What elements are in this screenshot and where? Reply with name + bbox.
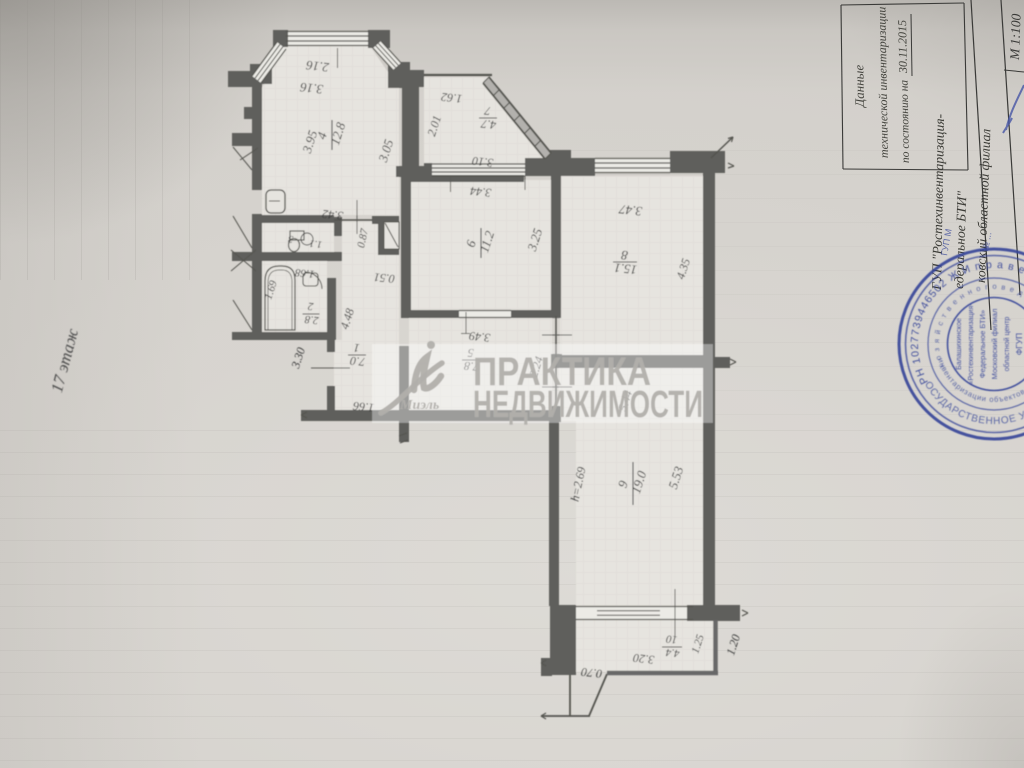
svg-text:3: 3 [288, 233, 295, 245]
svg-text:1.66: 1.66 [352, 399, 374, 415]
svg-text:3.30: 3.30 [288, 346, 308, 371]
svg-text:2.16: 2.16 [305, 58, 330, 75]
svg-text:«Ростехинвентаризация-: «Ростехинвентаризация- [968, 303, 975, 385]
svg-text:17 этаж: 17 этаж [47, 326, 82, 394]
svg-text:3.16: 3.16 [299, 80, 325, 97]
svg-text:10: 10 [665, 632, 678, 645]
svg-text:3.10: 3.10 [471, 154, 494, 170]
svg-text:Данные: Данные [851, 64, 867, 109]
svg-text:0.51: 0.51 [373, 270, 395, 286]
svg-text:7.0: 7.0 [349, 354, 365, 369]
svg-text:4.7: 4.7 [479, 117, 496, 133]
svg-text:2.8: 2.8 [304, 313, 319, 326]
svg-text:по состоянию на: по состоянию на [899, 80, 912, 164]
svg-text:Миэль: Миэль [399, 398, 439, 413]
svg-text:3.20: 3.20 [632, 651, 655, 667]
svg-text:1.20: 1.20 [723, 633, 743, 657]
svg-text:Федеральное БТИ»: Федеральное БТИ» [978, 310, 987, 378]
svg-text:технической инвентаризации: технической инвентаризации [874, 7, 891, 159]
svg-text:3.47: 3.47 [618, 202, 644, 219]
svg-text:3.44: 3.44 [469, 184, 492, 200]
svg-text:областной центр: областной центр [1003, 317, 1011, 372]
svg-text:1.68: 1.68 [294, 266, 315, 280]
svg-text:Московский филиал: Московский филиал [990, 309, 999, 380]
svg-text:НЕДВИЖИМОСТИ: НЕДВИЖИМОСТИ [473, 384, 703, 426]
svg-text:0.70: 0.70 [580, 665, 602, 681]
svg-text:4.4: 4.4 [665, 646, 680, 659]
svg-text:3.42: 3.42 [321, 207, 344, 223]
svg-text:1.62: 1.62 [440, 90, 462, 106]
svg-text:3.49: 3.49 [468, 329, 491, 345]
svg-text:30.11.2015: 30.11.2015 [895, 20, 910, 74]
svg-text:М 1:100: М 1:100 [1007, 13, 1024, 61]
svg-text:15.1: 15.1 [613, 260, 637, 277]
svg-text:Балашихинское: Балашихинское [956, 318, 963, 370]
svg-text:ФГУП: ФГУП [1014, 333, 1024, 356]
svg-text:1.1: 1.1 [309, 237, 323, 249]
